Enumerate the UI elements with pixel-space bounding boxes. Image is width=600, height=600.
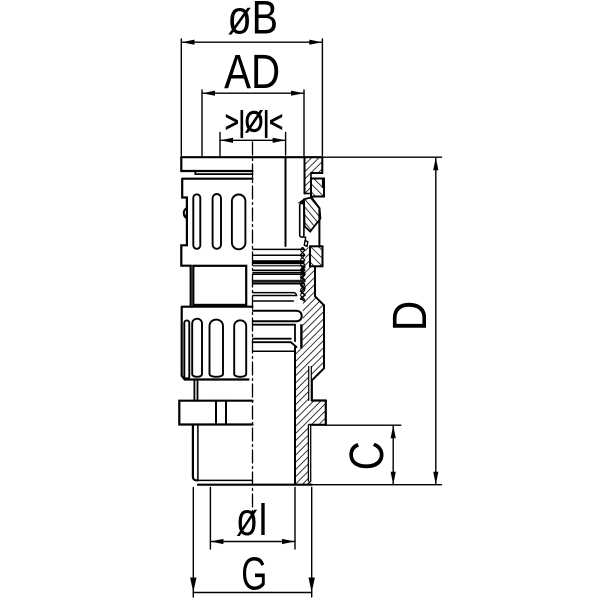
svg-text:G: G [241, 547, 267, 599]
svg-text:D: D [384, 301, 437, 332]
svg-text:C: C [341, 441, 394, 470]
svg-text:AD: AD [224, 46, 280, 99]
svg-text:>|Ø|<: >|Ø|< [225, 107, 283, 139]
svg-text:øI: øI [236, 493, 268, 545]
svg-text:øB: øB [227, 0, 278, 44]
